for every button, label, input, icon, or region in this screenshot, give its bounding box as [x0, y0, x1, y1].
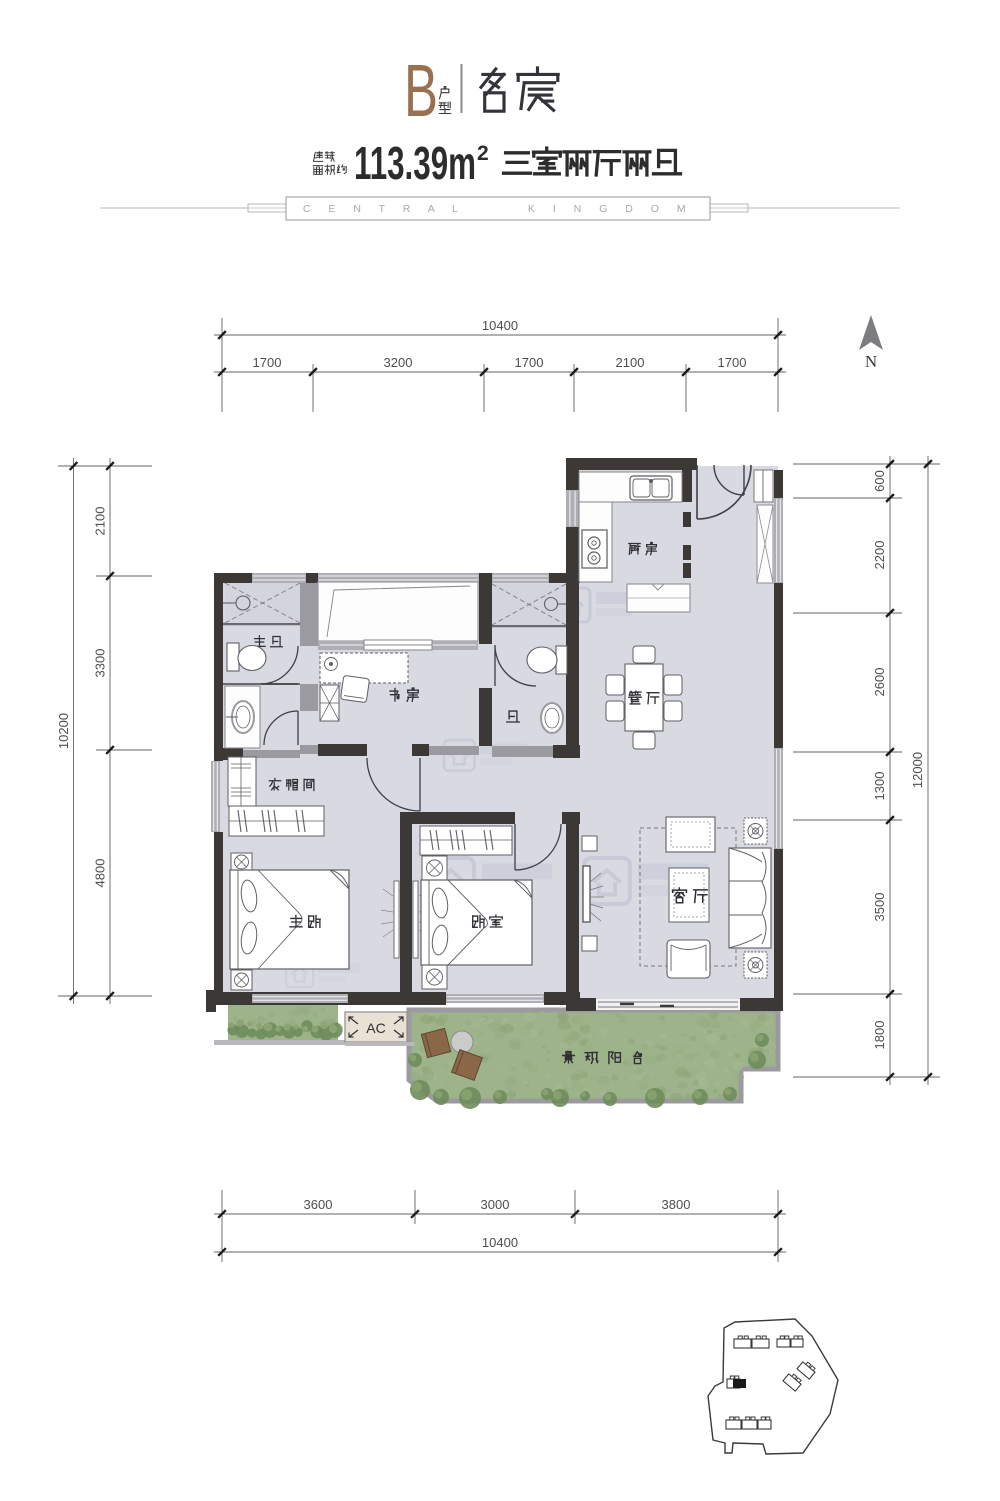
svg-text:10400: 10400 [482, 318, 518, 333]
svg-text:2100: 2100 [616, 355, 645, 370]
svg-text:3500: 3500 [872, 893, 887, 922]
svg-text:B: B [404, 49, 438, 132]
svg-text:3300: 3300 [93, 649, 108, 678]
svg-text:600: 600 [872, 470, 887, 492]
svg-text:N: N [865, 352, 877, 371]
svg-text:10200: 10200 [56, 713, 71, 749]
svg-text:1800: 1800 [872, 1021, 887, 1050]
svg-text:3600: 3600 [304, 1197, 333, 1212]
svg-text:2100: 2100 [93, 507, 108, 536]
svg-text:10400: 10400 [482, 1235, 518, 1250]
svg-text:2600: 2600 [872, 668, 887, 697]
svg-text:113.39m: 113.39m [354, 137, 476, 189]
svg-text:1700: 1700 [515, 355, 544, 370]
svg-text:1700: 1700 [253, 355, 282, 370]
svg-text:1300: 1300 [872, 772, 887, 801]
svg-text:4800: 4800 [93, 859, 108, 888]
svg-text:1700: 1700 [718, 355, 747, 370]
svg-text:3200: 3200 [384, 355, 413, 370]
svg-text:2200: 2200 [872, 541, 887, 570]
svg-text:AC: AC [366, 1020, 385, 1036]
svg-text:C E N T R A L K I N G D O: C E N T R A L K I N G D O M [303, 203, 693, 215]
svg-text:3800: 3800 [662, 1197, 691, 1212]
svg-text:12000: 12000 [910, 752, 925, 788]
svg-text:3000: 3000 [481, 1197, 510, 1212]
svg-text:2: 2 [477, 142, 489, 165]
